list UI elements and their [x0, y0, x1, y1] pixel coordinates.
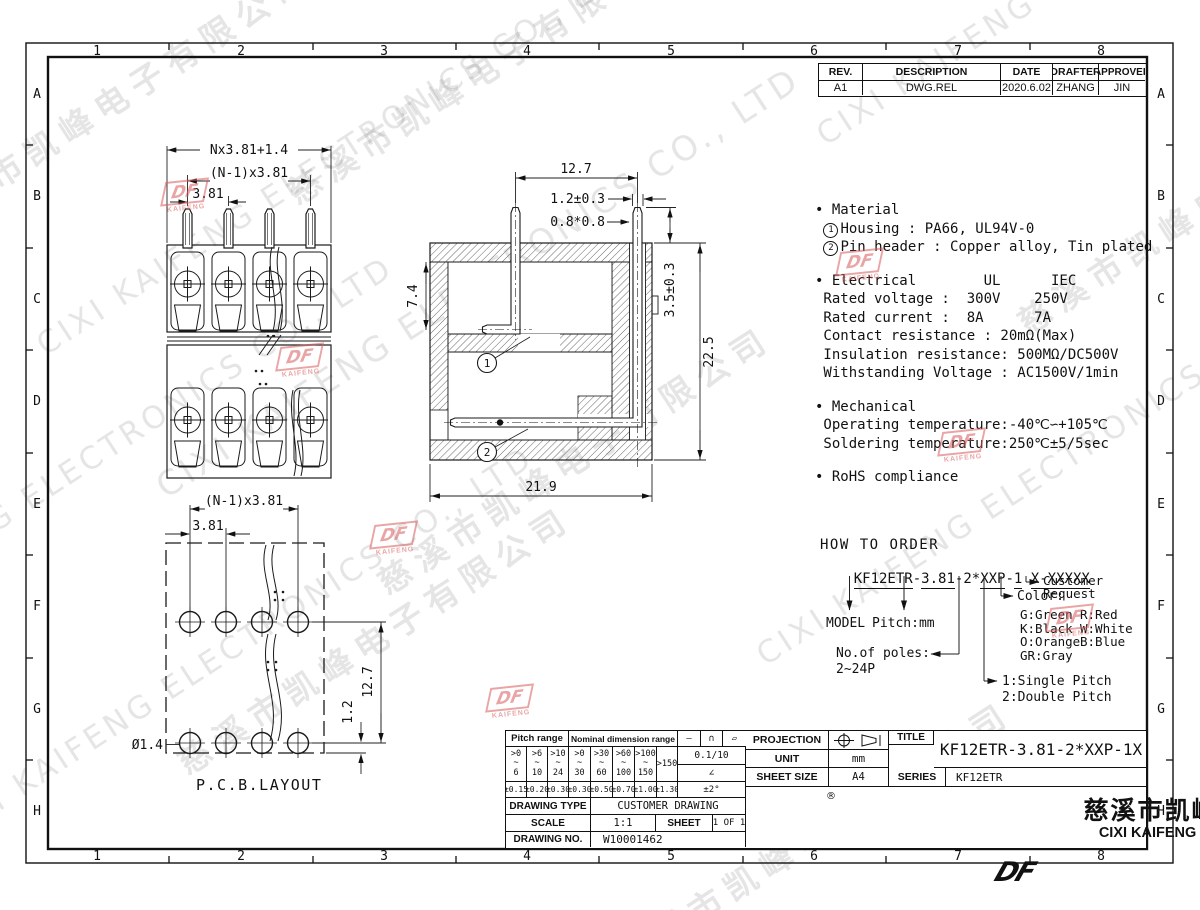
note-line: Contact resistance : 20mΩ(Max) [815, 328, 1152, 347]
rev-value: JIN [1099, 81, 1145, 95]
tol-value: ±0.30 [548, 782, 569, 798]
zone-col-label: 8 [1092, 849, 1110, 864]
range-bot: 60 [596, 769, 606, 779]
note-line: Rated voltage : 300V 250V [815, 291, 1152, 310]
rev-value: A1 [819, 81, 863, 95]
rev-header: DESCRIPTION [863, 64, 1001, 81]
sheet-value: 1 OF 1 [713, 815, 746, 832]
dim-label: 3.81 [192, 519, 223, 534]
tol-value: ±0.30 [569, 782, 591, 798]
note-line: • Material [815, 202, 1152, 221]
company-name-cn: 慈溪市凯峰电子有限公司 [1076, 791, 1200, 827]
zone-col-label: 6 [805, 849, 823, 864]
zone-col-label: 1 [88, 44, 106, 59]
tol-pitch-header: Pitch range [506, 731, 569, 747]
dim-label: 3.5±0.3 [663, 263, 678, 318]
rev-header: DATE [1001, 64, 1053, 81]
unit-value: mm [829, 750, 889, 768]
section-view: 1 2 [406, 162, 717, 502]
range-bot: 150 [638, 769, 653, 779]
tol-nominal-header: Nominal dimension range [569, 731, 678, 747]
tol-range: >60~100 [613, 747, 635, 782]
tol-value: ±0.70 [613, 782, 635, 798]
order-code-segment: 3.81 [921, 571, 955, 589]
straightness-icon: — [678, 731, 701, 747]
sheet-size-label: SHEET SIZE [746, 768, 829, 787]
zone-col-label: 6 [805, 44, 823, 59]
range-bot: 6 [513, 769, 518, 779]
zone-row-label: H [28, 804, 46, 819]
zone-col-label: 3 [375, 44, 393, 59]
third-angle-projection-icon [832, 732, 886, 749]
zone-col-label: 7 [949, 849, 967, 864]
order-customer-2: Request [1043, 586, 1096, 601]
spec-notes: • Material 1Housing : PA66, UL94V-0 2Pin… [815, 202, 1152, 488]
note-line: Withstanding Voltage : AC1500V/1min [815, 365, 1152, 384]
note-line: Soldering temperature:250℃±5/5sec [815, 436, 1152, 455]
note-line: • Mechanical [815, 399, 1152, 418]
scale-value: 1:1 [591, 815, 656, 832]
range-bot: 100 [616, 769, 631, 779]
zone-col-label: 7 [949, 44, 967, 59]
company-name-en: CIXI KAIFENG ELECTRONICS CO.,LTD [1076, 825, 1200, 841]
tol-range: >10~24 [548, 747, 569, 782]
note-text: Pin header : Copper alloy, Tin plated [840, 239, 1152, 255]
note-line: 2Pin header : Copper alloy, Tin plated [815, 239, 1152, 258]
tol-value: ±1.30 [657, 782, 678, 798]
dim-label: 1.2 [341, 700, 356, 723]
range-bot: 10 [532, 769, 542, 779]
order-code-segment: - [1005, 571, 1013, 587]
range-bot: 24 [553, 769, 563, 779]
zone-col-label: 4 [518, 44, 536, 59]
zone-row-label: F [1152, 599, 1170, 614]
unit-label: UNIT [746, 750, 829, 768]
angularity-icon: ∠ [678, 765, 746, 782]
projection-label: PROJECTION [746, 731, 829, 750]
sheet-label: SHEET [656, 815, 713, 832]
tol-value: ±1.00 [635, 782, 657, 798]
zone-row-label: G [1152, 702, 1170, 717]
note-line: 1Housing : PA66, UL94V-0 [815, 221, 1152, 240]
dim-label: 22.5 [702, 336, 717, 367]
series-value: KF12ETR [946, 768, 1148, 787]
zone-col-label: 5 [662, 849, 680, 864]
break-lines [264, 545, 282, 741]
zone-row-label: A [28, 87, 46, 102]
zone-col-label: 1 [88, 849, 106, 864]
svg-text:2: 2 [484, 446, 491, 459]
zone-col-label: 3 [375, 849, 393, 864]
zone-row-label: C [1152, 292, 1170, 307]
zone-row-label: D [28, 394, 46, 409]
rev-header: DRAFTER [1053, 64, 1099, 81]
tol-range: >100~150 [635, 747, 657, 782]
order-code-segment [1022, 571, 1030, 587]
pcb-dimensions [165, 505, 386, 774]
note-line: • Electrical UL IEC [815, 273, 1152, 292]
dim-label: 7.4 [406, 284, 421, 308]
circled-2-icon: 2 [823, 241, 838, 256]
pcb-layout-view: (N-1)x3.81 3.81 12.7 1.2 Ø1.4 P.C.B.LAYO… [132, 494, 386, 794]
arc-tolerance-icon: ∩ [701, 731, 723, 747]
drawing-type-value: CUSTOMER DRAWING [591, 798, 746, 815]
order-pitch-type-2: 2:Double Pitch [1002, 690, 1112, 705]
drawing-type-label: DRAWING TYPE [506, 798, 591, 815]
title-block: Pitch range Nominal dimension range — ∩ … [505, 730, 1147, 849]
tol-value: ±0.50 [591, 782, 613, 798]
dim-label: 0.8*0.8 [550, 215, 605, 230]
order-model-label: MODEL [826, 616, 865, 631]
revision-table: REV. DESCRIPTION DATE DRAFTER APPROVER A… [818, 63, 1147, 97]
series-label: SERIES [889, 768, 946, 787]
company-area: DF ® 慈溪市凯峰电子有限公司 CIXI KAIFENG ELECTRONIC… [746, 787, 1148, 848]
rev-header: APPROVER [1099, 64, 1145, 81]
dim-label: 3.81 [192, 187, 223, 202]
dim-label: (N-1)x3.81 [205, 494, 283, 509]
front-view: Nx3.81+1.4 (N-1)x3.81 3.81 [167, 143, 331, 478]
zone-row-label: B [28, 189, 46, 204]
registered-mark: ® [826, 791, 836, 802]
projection-symbol [829, 731, 889, 750]
note-line: Operating temperature:-40℃∽+105℃ [815, 417, 1152, 436]
order-code-segment: - [913, 571, 921, 587]
zone-col-label: 8 [1092, 44, 1110, 59]
order-color-option: GR:Gray [1020, 648, 1073, 663]
zone-row-label: F [28, 599, 46, 614]
tol-value: ±0.20 [527, 782, 548, 798]
tol-range: >6~10 [527, 747, 548, 782]
order-code-segment: XXP [980, 571, 1005, 589]
how-to-order-heading: HOW TO ORDER [820, 537, 939, 553]
rev-value: ZHANG [1053, 81, 1099, 95]
zone-col-label: 4 [518, 849, 536, 864]
tol-range-last: >150 [657, 747, 678, 782]
title-label: TITLE [889, 731, 934, 745]
order-poles-range: 2~24P [836, 662, 875, 677]
scale-label: SCALE [506, 815, 591, 832]
tol-right-bot: ±2° [678, 782, 746, 798]
dim-label: Nx3.81+1.4 [210, 143, 288, 158]
tol-range: >0~6 [506, 747, 527, 782]
circled-1-icon: 1 [823, 223, 838, 238]
svg-text:1: 1 [484, 357, 491, 370]
tol-range: >30~60 [591, 747, 613, 782]
dim-label: 21.9 [525, 480, 556, 495]
note-line: • RoHS compliance [815, 469, 1152, 488]
zone-col-label: 2 [232, 849, 250, 864]
zone-row-label: C [28, 292, 46, 307]
order-poles-label: No.of poles: [836, 646, 930, 661]
zone-row-label: G [28, 702, 46, 717]
zone-row-label: D [1152, 394, 1170, 409]
rev-value: 2020.6.02 [1001, 81, 1053, 95]
note-line: Rated current : 8A 7A [815, 310, 1152, 329]
drawing-no-label: DRAWING NO. [506, 832, 591, 847]
zone-row-label: B [1152, 189, 1170, 204]
drawing-sheet: CIXI KAIFENG ELECTRONICS CO., LTD 慈溪市凯峰电… [0, 0, 1200, 910]
title-value: KF12ETR-3.81-2*XXP-1X [934, 731, 1148, 768]
zone-row-label: E [28, 497, 46, 512]
note-text: Housing : PA66, UL94V-0 [840, 221, 1034, 237]
zone-col-label: 2 [232, 44, 250, 59]
dim-label: 12.7 [560, 162, 591, 177]
sheet-size-value: A4 [829, 768, 889, 787]
order-code-segment: KF12ETR [854, 571, 913, 589]
rev-value: DWG.REL [863, 81, 1001, 95]
order-pitch-type-1: 1:Single Pitch [1002, 674, 1112, 689]
note-line: Insulation resistance: 500MΩ/DC500V [815, 347, 1152, 366]
dim-label: 12.7 [361, 666, 376, 697]
pcb-caption: P.C.B.LAYOUT [196, 776, 322, 794]
order-pitch-label: Pitch:mm [872, 616, 935, 631]
order-code-segment: -2* [955, 571, 980, 587]
drawing-no-value: W10001462 [591, 832, 746, 847]
tol-range: >0~30 [569, 747, 591, 782]
dim-label: Ø1.4 [132, 738, 163, 753]
zone-row-label: A [1152, 87, 1170, 102]
zone-col-label: 5 [662, 44, 680, 59]
tol-value: ±0.15 [506, 782, 527, 798]
tol-right-top: 0.1/10 [678, 747, 746, 765]
flatness-icon: ▱ [723, 731, 746, 747]
dim-label: 1.2±0.3 [550, 192, 605, 207]
rev-header: REV. [819, 64, 863, 81]
dim-label: (N-1)x3.81 [210, 166, 288, 181]
zone-row-label: E [1152, 497, 1170, 512]
order-color-option: B:Blue [1080, 634, 1125, 649]
range-bot: 30 [574, 769, 584, 779]
